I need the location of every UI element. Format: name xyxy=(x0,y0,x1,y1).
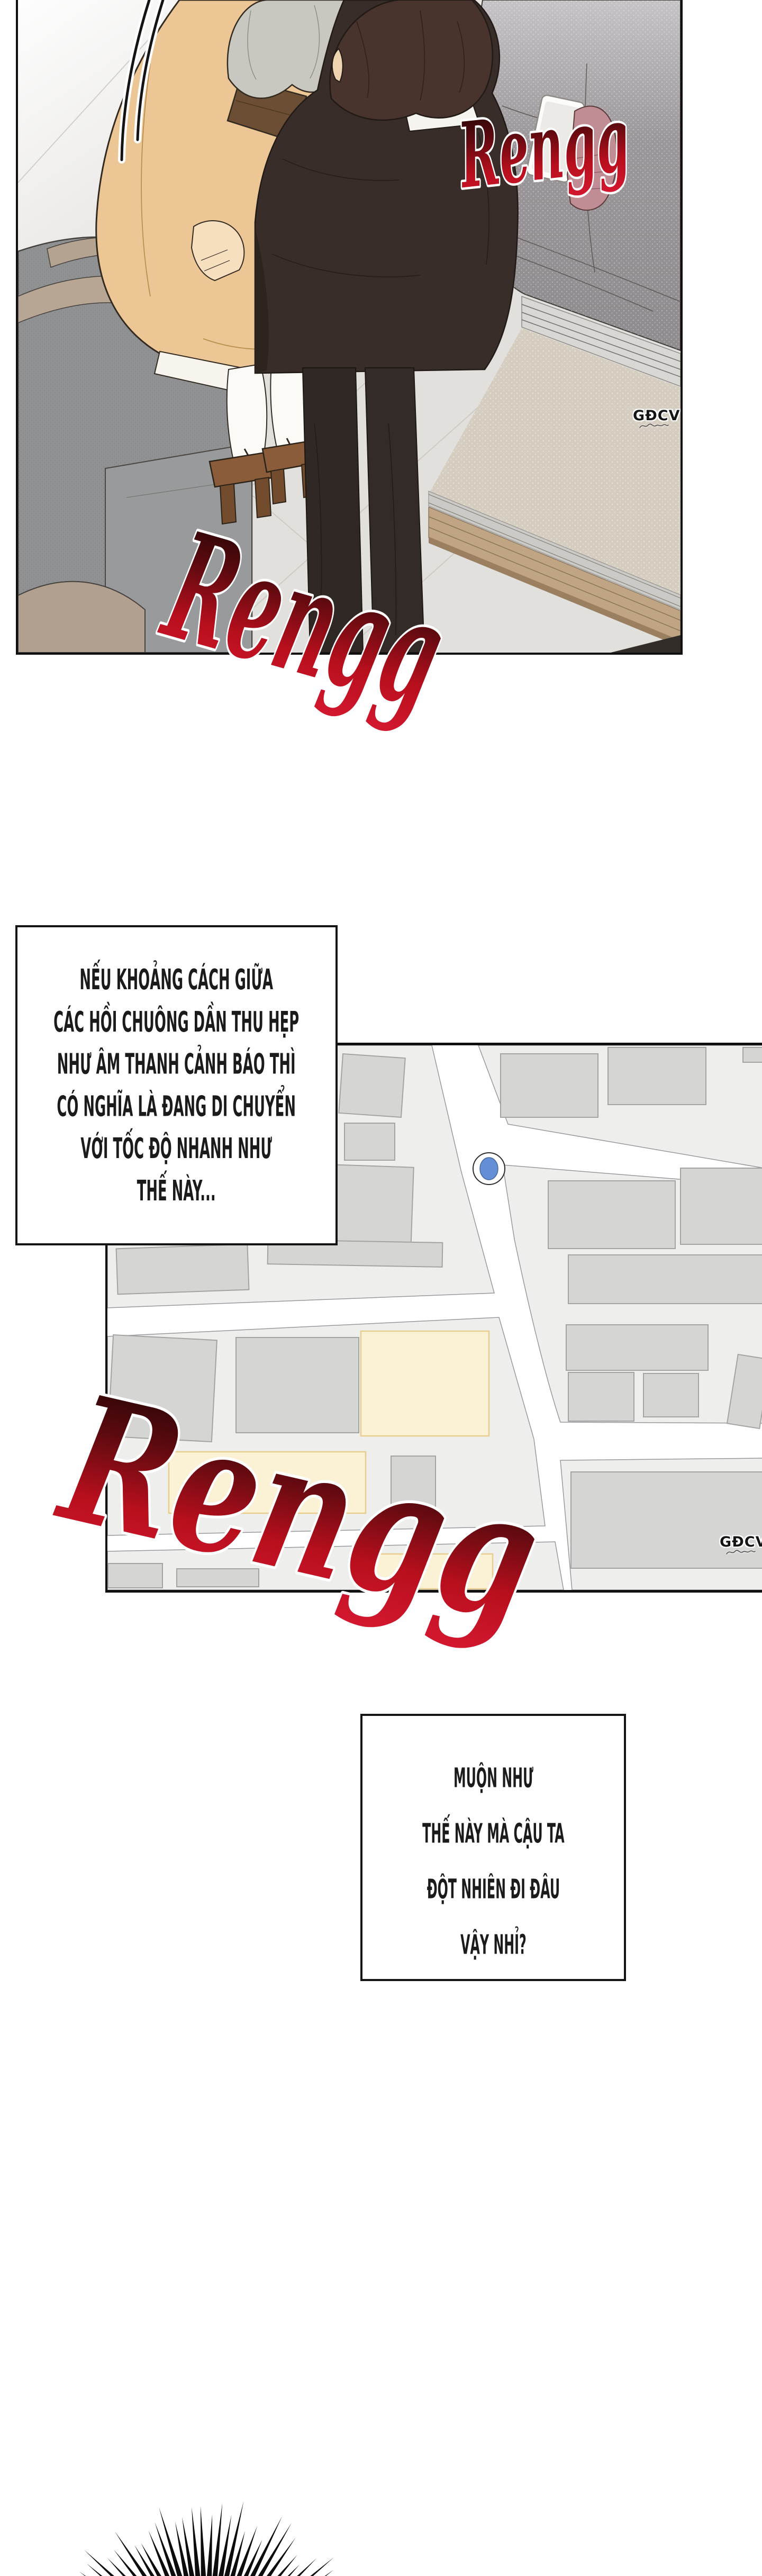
suit-leg-left xyxy=(303,368,363,653)
translator-watermark: GĐCV xyxy=(720,1535,762,1557)
map-building xyxy=(391,1456,436,1509)
map-building xyxy=(501,1054,598,1117)
map-building xyxy=(568,1372,634,1421)
dialogue-line: CÓ NGHĨA LÀ ĐANG DI CHUYỂN xyxy=(53,1086,299,1128)
map-building xyxy=(236,1337,359,1433)
narration-text: NẾU KHOẢNG CÁCH GIỮACÁC HỒI CHUÔNG DẦN T… xyxy=(53,959,299,1212)
map-building xyxy=(566,1325,708,1370)
translator-watermark: GĐCV xyxy=(633,409,675,430)
dialogue-line: MUỘN NHƯ xyxy=(422,1751,565,1806)
hair-spike-silhouette xyxy=(67,2501,346,2576)
dialogue-line: THẾ NÀY... xyxy=(53,1170,299,1212)
comic-page: Rengg Rengg Rengg NẾU KHOẢNG CÁCH GIỮACÁ… xyxy=(0,0,762,2576)
map-building xyxy=(108,1563,162,1588)
spiky-hair-burst xyxy=(0,2477,762,2576)
watermark-signature-text: GĐCV xyxy=(720,1535,762,1549)
suit-leg-right xyxy=(365,368,424,653)
dialogue-line: THẾ NÀY MÀ CẬU TA xyxy=(422,1806,565,1862)
map-building xyxy=(116,1244,249,1295)
map-building xyxy=(344,1123,395,1160)
dialogue-line: NHƯ ÂM THANH CẢNH BÁO THÌ xyxy=(53,1043,299,1086)
dialogue-line: ĐỘT NHIÊN ĐI ĐÂU xyxy=(422,1862,565,1918)
location-dot-icon xyxy=(480,1158,498,1180)
map-block xyxy=(107,1542,564,1590)
map-building-yellow xyxy=(374,1554,493,1589)
signature-squiggle-icon xyxy=(725,1548,756,1557)
dialogue-line: VẬY NHỈ? xyxy=(422,1918,565,1973)
map-building xyxy=(568,1255,762,1304)
tabi-sock-left xyxy=(227,364,267,463)
dialogue-line: NẾU KHOẢNG CÁCH GIỮA xyxy=(53,959,299,1001)
map-building xyxy=(643,1373,698,1417)
map-building xyxy=(330,1164,413,1252)
map-building xyxy=(548,1181,675,1249)
map-building xyxy=(339,1054,405,1117)
speech-box: MUỘN NHƯTHẾ NÀY MÀ CẬU TAĐỘT NHIÊN ĐI ĐÂ… xyxy=(360,1714,626,1981)
map-building xyxy=(608,1047,706,1105)
map-building-yellow xyxy=(361,1331,489,1436)
scene-illustration xyxy=(18,0,681,653)
map-building xyxy=(681,1168,762,1244)
signature-squiggle-icon xyxy=(639,422,669,430)
map-building xyxy=(177,1569,259,1587)
dialogue-line: CÁC HỒI CHUÔNG DẦN THU HẸP xyxy=(53,1001,299,1043)
watermark-signature-text: GĐCV xyxy=(633,409,675,423)
panel-street-scene xyxy=(16,0,683,655)
narration-box: NẾU KHOẢNG CÁCH GIỮACÁC HỒI CHUÔNG DẦN T… xyxy=(15,925,338,1245)
map-building-yellow xyxy=(169,1452,366,1513)
map-building xyxy=(108,1335,217,1442)
map-building xyxy=(743,1047,762,1062)
speech-text: MUỘN NHƯTHẾ NÀY MÀ CẬU TAĐỘT NHIÊN ĐI ĐÂ… xyxy=(422,1751,565,1973)
dialogue-line: VỚI TỐC ĐỘ NHANH NHƯ xyxy=(53,1127,299,1170)
